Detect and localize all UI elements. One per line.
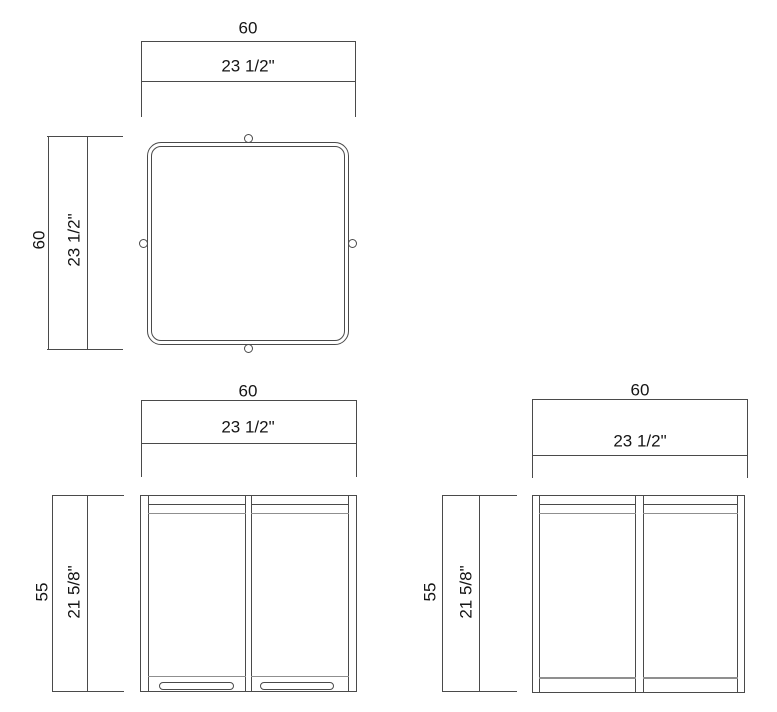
technical-drawing-canvas: 60 23 1/2" 60 23 1/2" 60 23 1/2" 55 2	[0, 0, 777, 712]
front-top-rail-shadow-left	[148, 513, 246, 514]
side-bottom-rail-line-left	[539, 677, 636, 679]
side-width-dim-line-1	[532, 399, 748, 400]
front-height-dim-line-1	[52, 495, 53, 692]
side-height-in-label: 21 5/8"	[458, 565, 475, 618]
side-width-dim-line-2	[532, 455, 748, 456]
front-left-leg-inner-line	[148, 495, 149, 692]
side-center-leg-line-2	[643, 495, 644, 693]
side-width-ext-line-right	[747, 399, 748, 478]
front-top-rail-shadow-right	[251, 513, 349, 514]
side-top-rail-shadow-right	[643, 513, 738, 514]
front-height-cm-label: 55	[34, 583, 51, 602]
front-height-ext-line-top	[52, 495, 124, 496]
front-right-leg-inner-line	[348, 495, 349, 692]
side-width-in-label: 23 1/2"	[613, 433, 666, 450]
plan-width-cm-label: 60	[239, 20, 258, 37]
plan-depth-ext-line-bottom	[47, 349, 123, 350]
front-width-ext-line-left	[141, 400, 142, 477]
plan-depth-dim-line-2	[87, 136, 88, 350]
side-height-dim-line-1	[442, 495, 443, 692]
side-top-rail-line-right	[643, 504, 738, 505]
side-height-dim-line-2	[479, 495, 480, 692]
front-height-ext-line-bottom	[52, 691, 124, 692]
side-top-rail-line-left	[539, 504, 636, 505]
front-top-rail-line-right	[251, 504, 349, 505]
plan-knob-bottom	[244, 344, 253, 353]
front-bottom-rail-line-right	[251, 676, 349, 677]
side-frame-outline	[532, 495, 745, 693]
side-height-ext-line-top	[442, 495, 517, 496]
front-frame-outline	[140, 495, 357, 692]
side-top-rail-shadow-left	[539, 513, 636, 514]
front-bottom-slot-left	[159, 682, 234, 690]
plan-width-in-label: 23 1/2"	[221, 58, 274, 75]
side-center-leg-line-1	[635, 495, 636, 693]
plan-width-ext-line-right	[355, 41, 356, 117]
front-center-leg-line-2	[251, 495, 252, 692]
plan-depth-dim-line-1	[48, 136, 49, 350]
front-width-dim-line-1	[141, 400, 357, 401]
plan-depth-in-label: 23 1/2"	[66, 213, 83, 266]
front-width-cm-label: 60	[239, 383, 258, 400]
plan-width-ext-line-left	[141, 41, 142, 117]
plan-knob-top	[244, 134, 253, 143]
front-top-rail-line-left	[148, 504, 246, 505]
plan-depth-ext-line-top	[47, 136, 123, 137]
plan-width-dim-line-1	[141, 41, 356, 42]
plan-width-dim-line-2	[141, 81, 356, 82]
front-height-dim-line-2	[87, 495, 88, 692]
plan-depth-cm-label: 60	[31, 231, 48, 250]
side-left-leg-inner-line	[539, 495, 540, 693]
front-width-in-label: 23 1/2"	[221, 419, 274, 436]
side-height-cm-label: 55	[422, 583, 439, 602]
front-center-leg-line-1	[245, 495, 246, 692]
side-bottom-rail-line-right	[643, 677, 738, 679]
front-bottom-rail-line-left	[148, 676, 246, 677]
side-right-leg-inner-line	[737, 495, 738, 693]
side-width-cm-label: 60	[631, 382, 650, 399]
front-height-in-label: 21 5/8"	[66, 565, 83, 618]
front-width-dim-line-2	[141, 443, 357, 444]
plan-knob-right	[348, 239, 357, 248]
side-height-ext-line-bottom	[442, 691, 517, 692]
front-bottom-slot-right	[260, 682, 334, 690]
plan-tabletop-inner-outline	[151, 146, 345, 341]
front-width-ext-line-right	[356, 400, 357, 477]
side-width-ext-line-left	[532, 399, 533, 478]
plan-knob-left	[139, 239, 148, 248]
